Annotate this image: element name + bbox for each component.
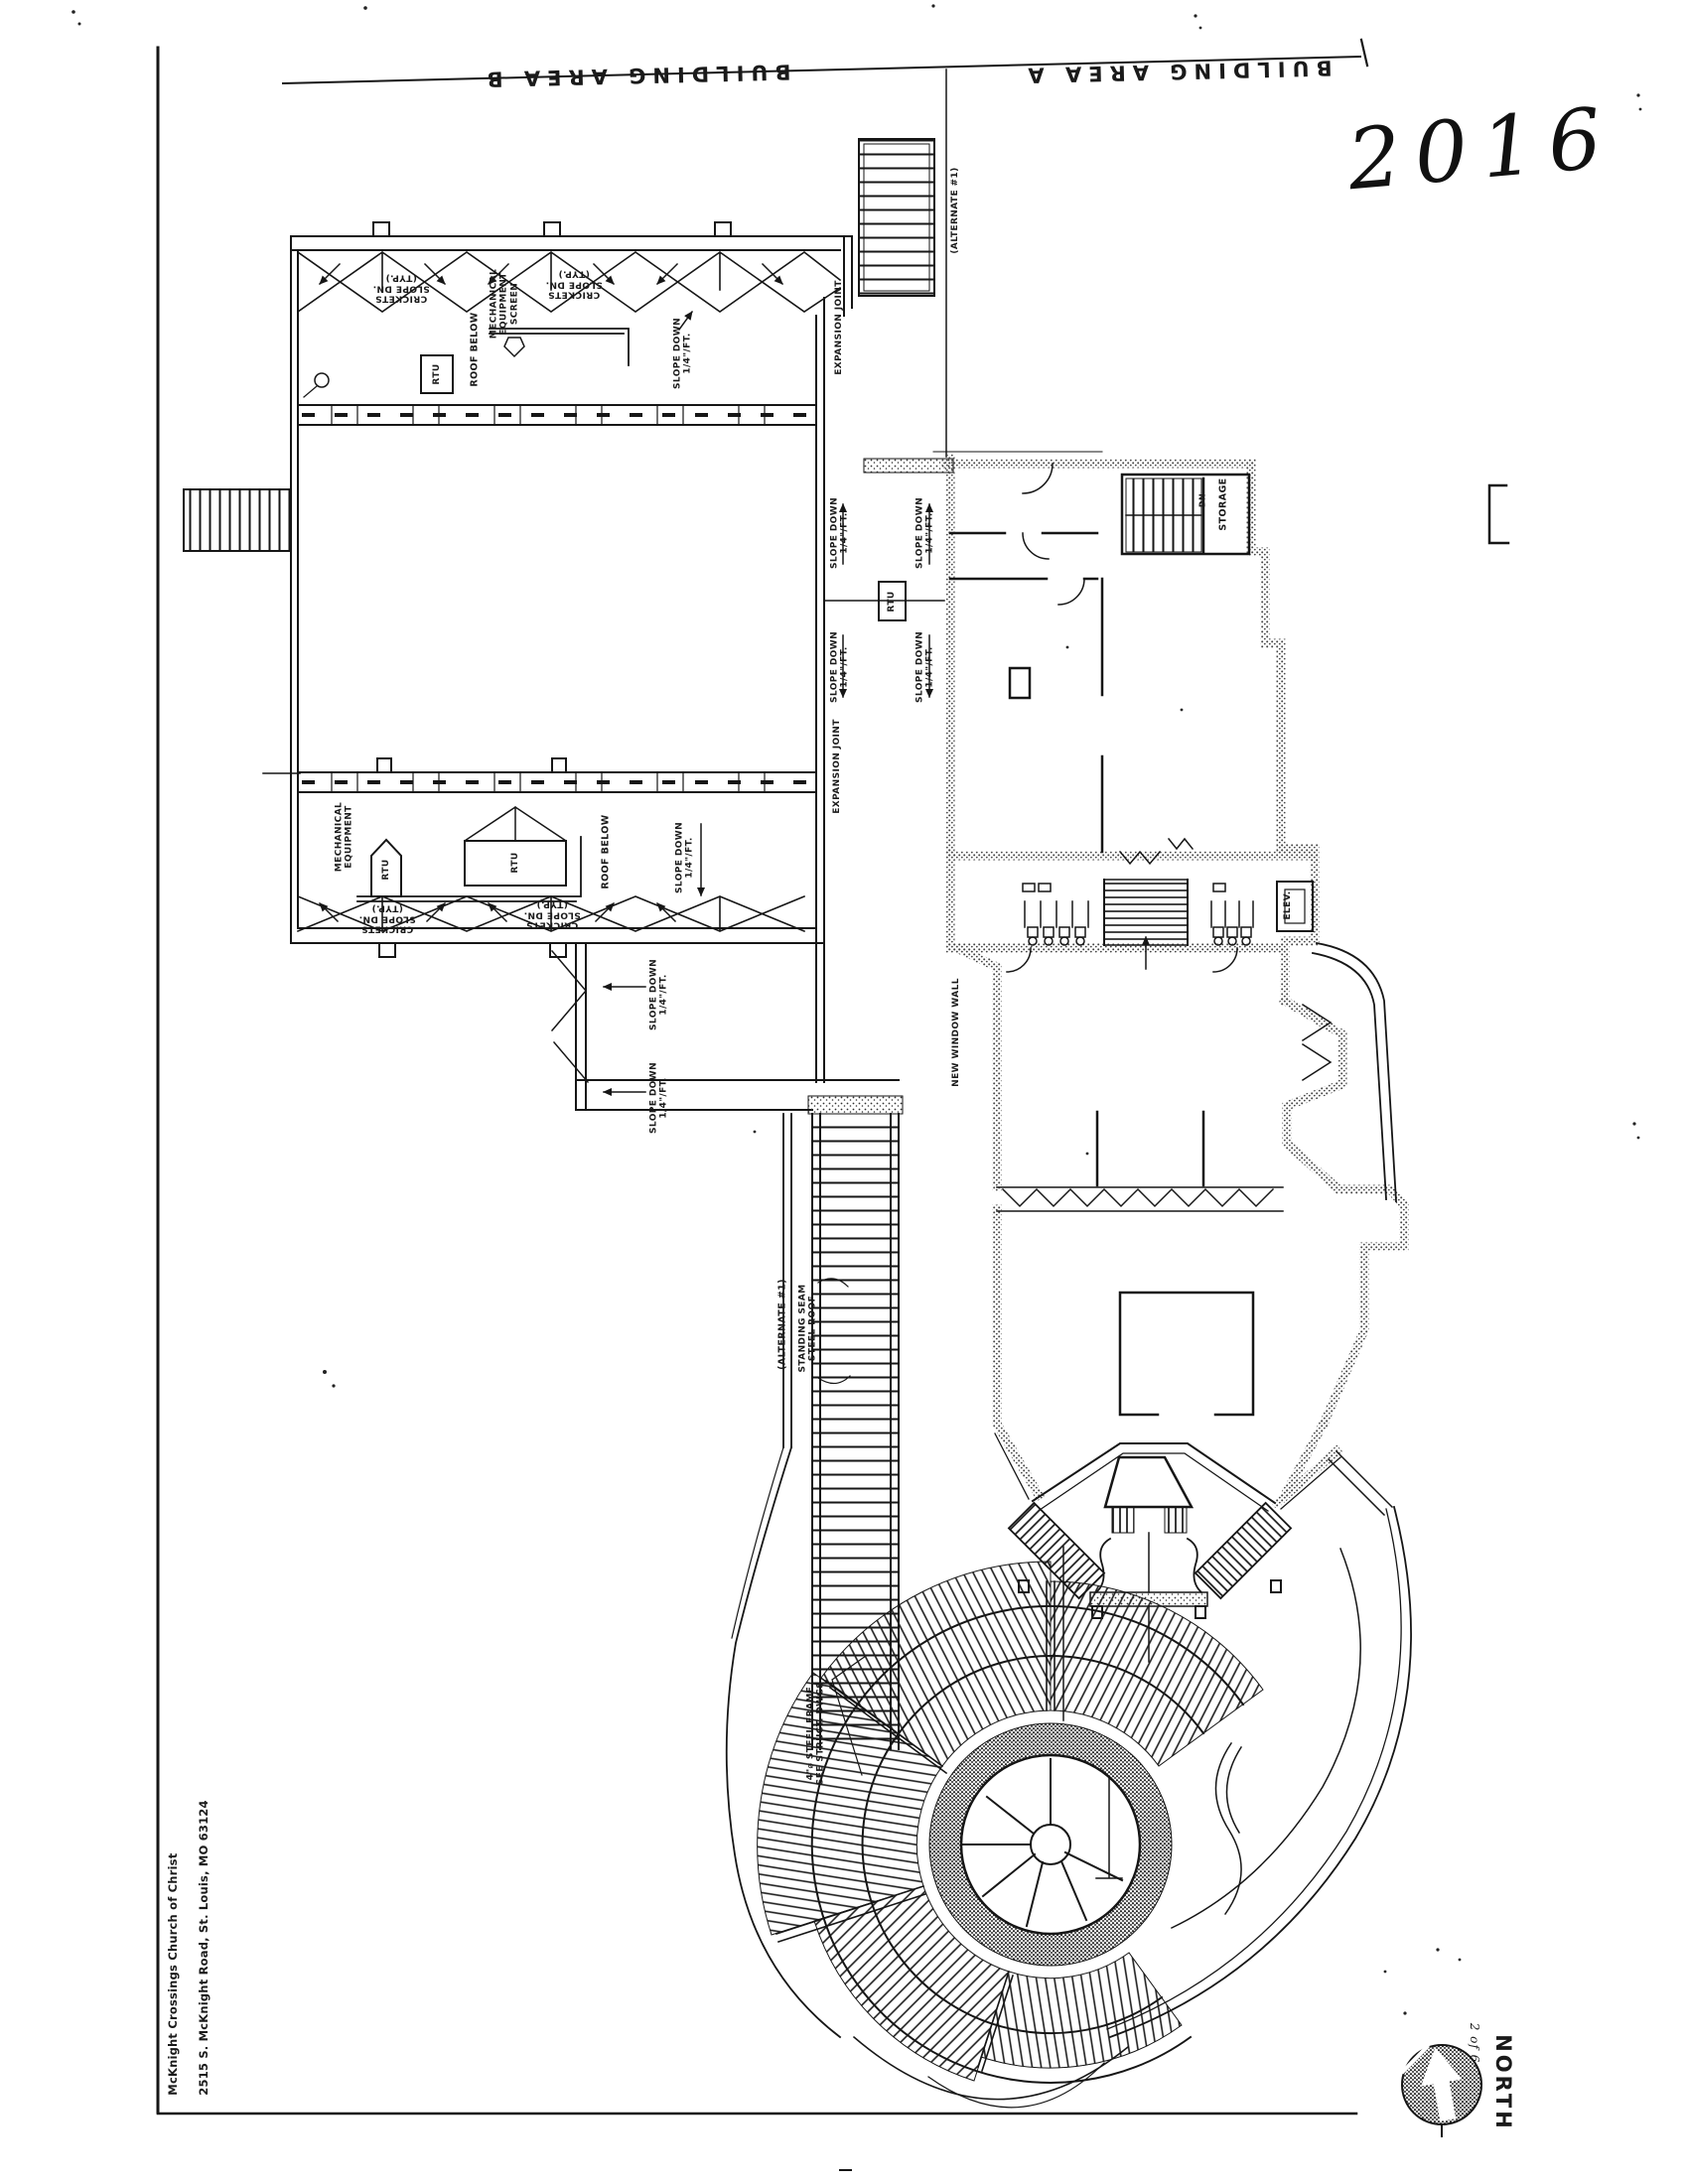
crickets-label-2: CRICKETS SLOPE DN. (TYP.) [545,268,602,299]
keynote-circle [315,373,329,387]
dn-label: DN [1197,493,1206,507]
storage-label: STORAGE [1219,478,1230,530]
central-stair [1104,880,1188,945]
expansion-joint-label-1: EXPANSION JOINT [834,280,844,375]
west-exterior-stair [184,489,291,551]
slope-down-label-5: SLOPE DOWN 1/4"/FT. [915,497,936,569]
slope-down-label-1: SLOPE DOWN 1/4"/FT. [673,318,694,389]
standing-seam-label: STANDING SEAM STEEL ROOF [798,1284,819,1372]
building-b-roof [184,222,852,1082]
pulpit-platform [1105,1457,1192,1507]
rtu-label-top: RTU [432,363,442,384]
crickets-label-4: CRICKETS SLOPE DN. (TYP.) [523,898,580,929]
mech-equipment-label: MECHANICAL EQUIPMENT [335,802,355,872]
curved-path [1215,1743,1241,1914]
door-arc [1058,579,1084,605]
roof-below-label-1: ROOF BELOW [471,312,482,386]
sawtooth-window-band [1003,1189,1273,1206]
rtu-label-gable: RTU [510,852,520,873]
slope-down-label-3: SLOPE DOWN 1/4"/FT. [830,497,851,569]
scanned-roof-floor-plan-sheet: BUILDING AREA B BUILDING AREA A 2016 CRI… [0,0,1688,2184]
alternate1-stair-label: (ALTERNATE #1) [950,167,960,253]
alternate1-walkway-label: (ALTERNATE #1) [778,1279,789,1370]
east-walk-edge [1313,943,1396,1201]
firm-name: McKnight Crossings Church of Christ [166,1800,182,2095]
roof-link-corridor [576,945,586,1110]
slope-down-label-4: SLOPE DOWN 1/4"/FT. [830,631,851,703]
roof-drain-icon [504,338,524,356]
door-arc [1023,533,1049,559]
chapel-inner-room [1120,1293,1253,1415]
slope-down-label-2: SLOPE DOWN 1/4"/FT. [675,822,696,893]
crickets-label-1: CRICKETS SLOPE DN. (TYP.) [372,272,429,303]
stage-stair-right [1196,1503,1291,1598]
slope-down-label-8: SLOPE DOWN 1/4"/FT. [649,1062,670,1134]
firm-address: 2515 S. McKnight Road, St. Louis, MO 631… [197,1800,212,2095]
crickets-label-3: CRICKETS SLOPE DN. (TYP.) [358,902,415,933]
roof-below-label-2: ROOF BELOW [602,814,613,888]
building-a-plan [946,459,1404,1503]
slope-down-label-7: SLOPE DOWN 1/4"/FT. [649,959,670,1030]
sheet-number-note: 2 of 6 [1467,2023,1480,2064]
alternate-exterior-stair [859,139,934,296]
hub-center [1031,1825,1070,1864]
north-label: NORTH [1491,2034,1515,2131]
restroom-partitions-left [1025,901,1088,927]
elevator-label: ELEV. [1283,890,1293,919]
steel-frame-label: 4"⌀ STEEL FRAME SEE STRUCT. DWGS [806,1682,827,1785]
rtu-label-connector: RTU [887,591,897,612]
new-window-wall-label: NEW WINDOW WALL [951,978,961,1087]
mech-equipment-screen-label: MECHANICAL EQUIPMENT SCREEN [489,269,519,339]
firm-address-block: McKnight Crossings Church of Christ 2515… [150,1800,227,2095]
restroom-partitions-right [1211,901,1253,927]
rtu-label-pentagon: RTU [381,859,391,880]
slope-down-label-6: SLOPE DOWN 1/4"/FT. [915,631,936,703]
expansion-joint-label-2: EXPANSION JOINT [832,719,842,814]
